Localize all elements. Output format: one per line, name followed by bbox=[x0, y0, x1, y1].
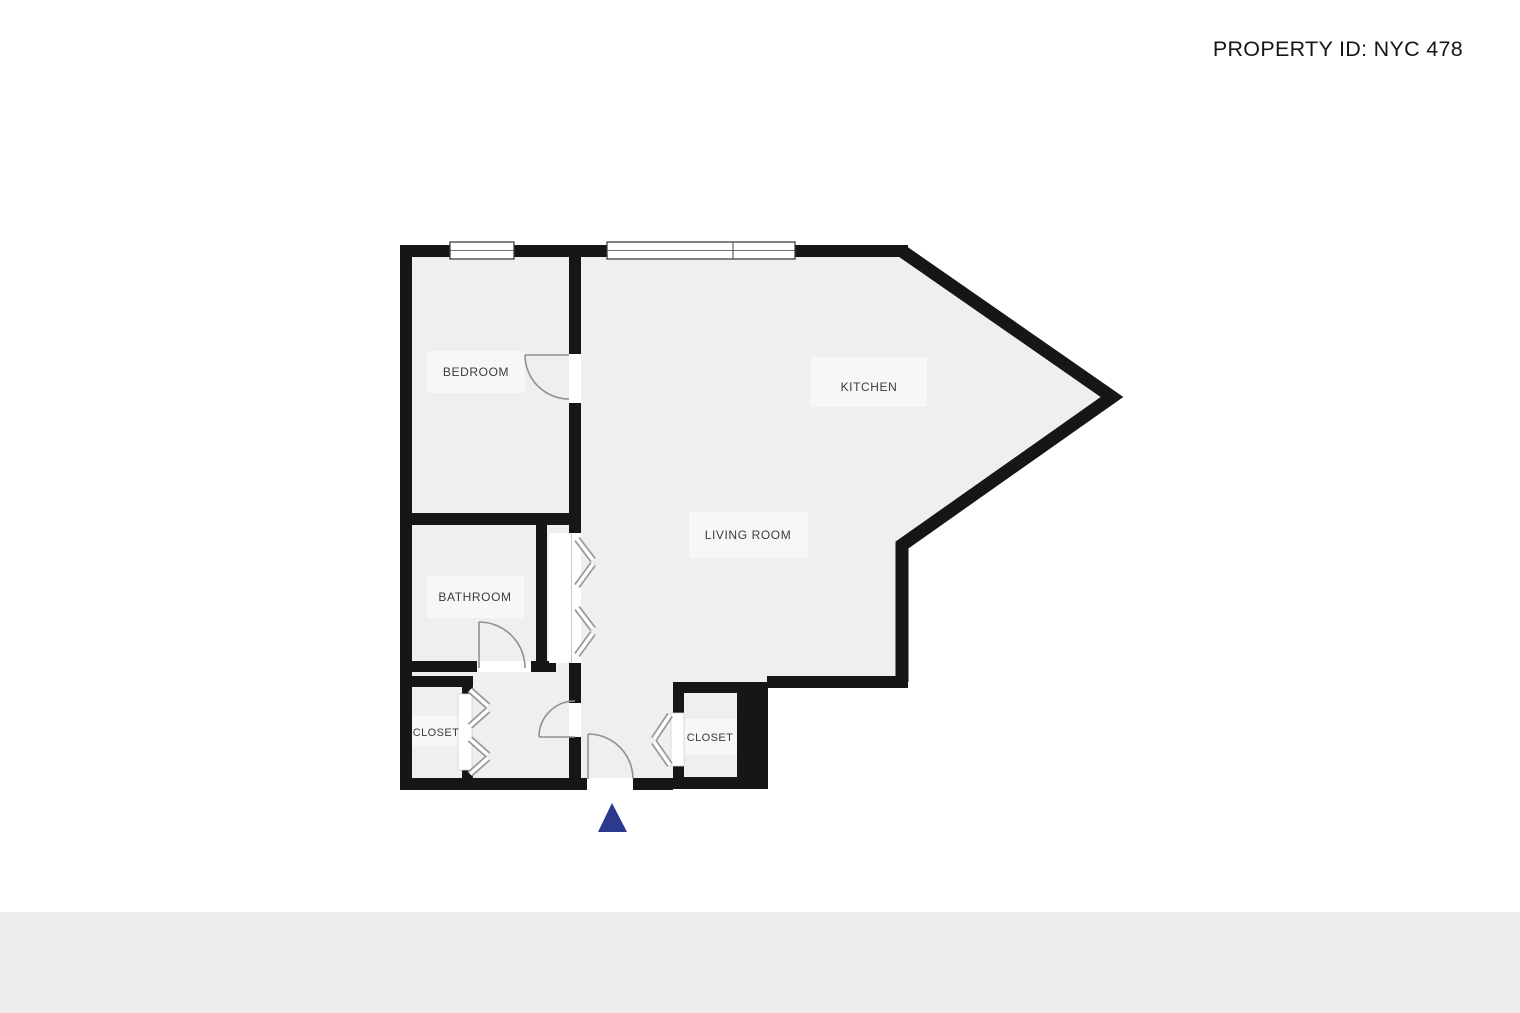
room-label-closet-right: CLOSET bbox=[687, 732, 733, 744]
floor-plan: BEDROOM KITCHEN LIVING ROOM BATHROOM CLO… bbox=[0, 0, 1520, 900]
footer-bar: MAIN ENTRANCE blueground bbox=[0, 912, 1520, 1013]
room-label-closet-left: CLOSET bbox=[413, 727, 459, 739]
room-label-bathroom: BATHROOM bbox=[438, 590, 511, 604]
room-label-living-room: LIVING ROOM bbox=[705, 528, 792, 542]
windows bbox=[450, 242, 795, 259]
entrance-marker-icon bbox=[598, 803, 627, 832]
room-label-bedroom: BEDROOM bbox=[443, 365, 509, 379]
room-label-kitchen: KITCHEN bbox=[841, 380, 898, 394]
floorplan-page: PROPERTY ID: NYC 478 bbox=[0, 0, 1520, 1013]
